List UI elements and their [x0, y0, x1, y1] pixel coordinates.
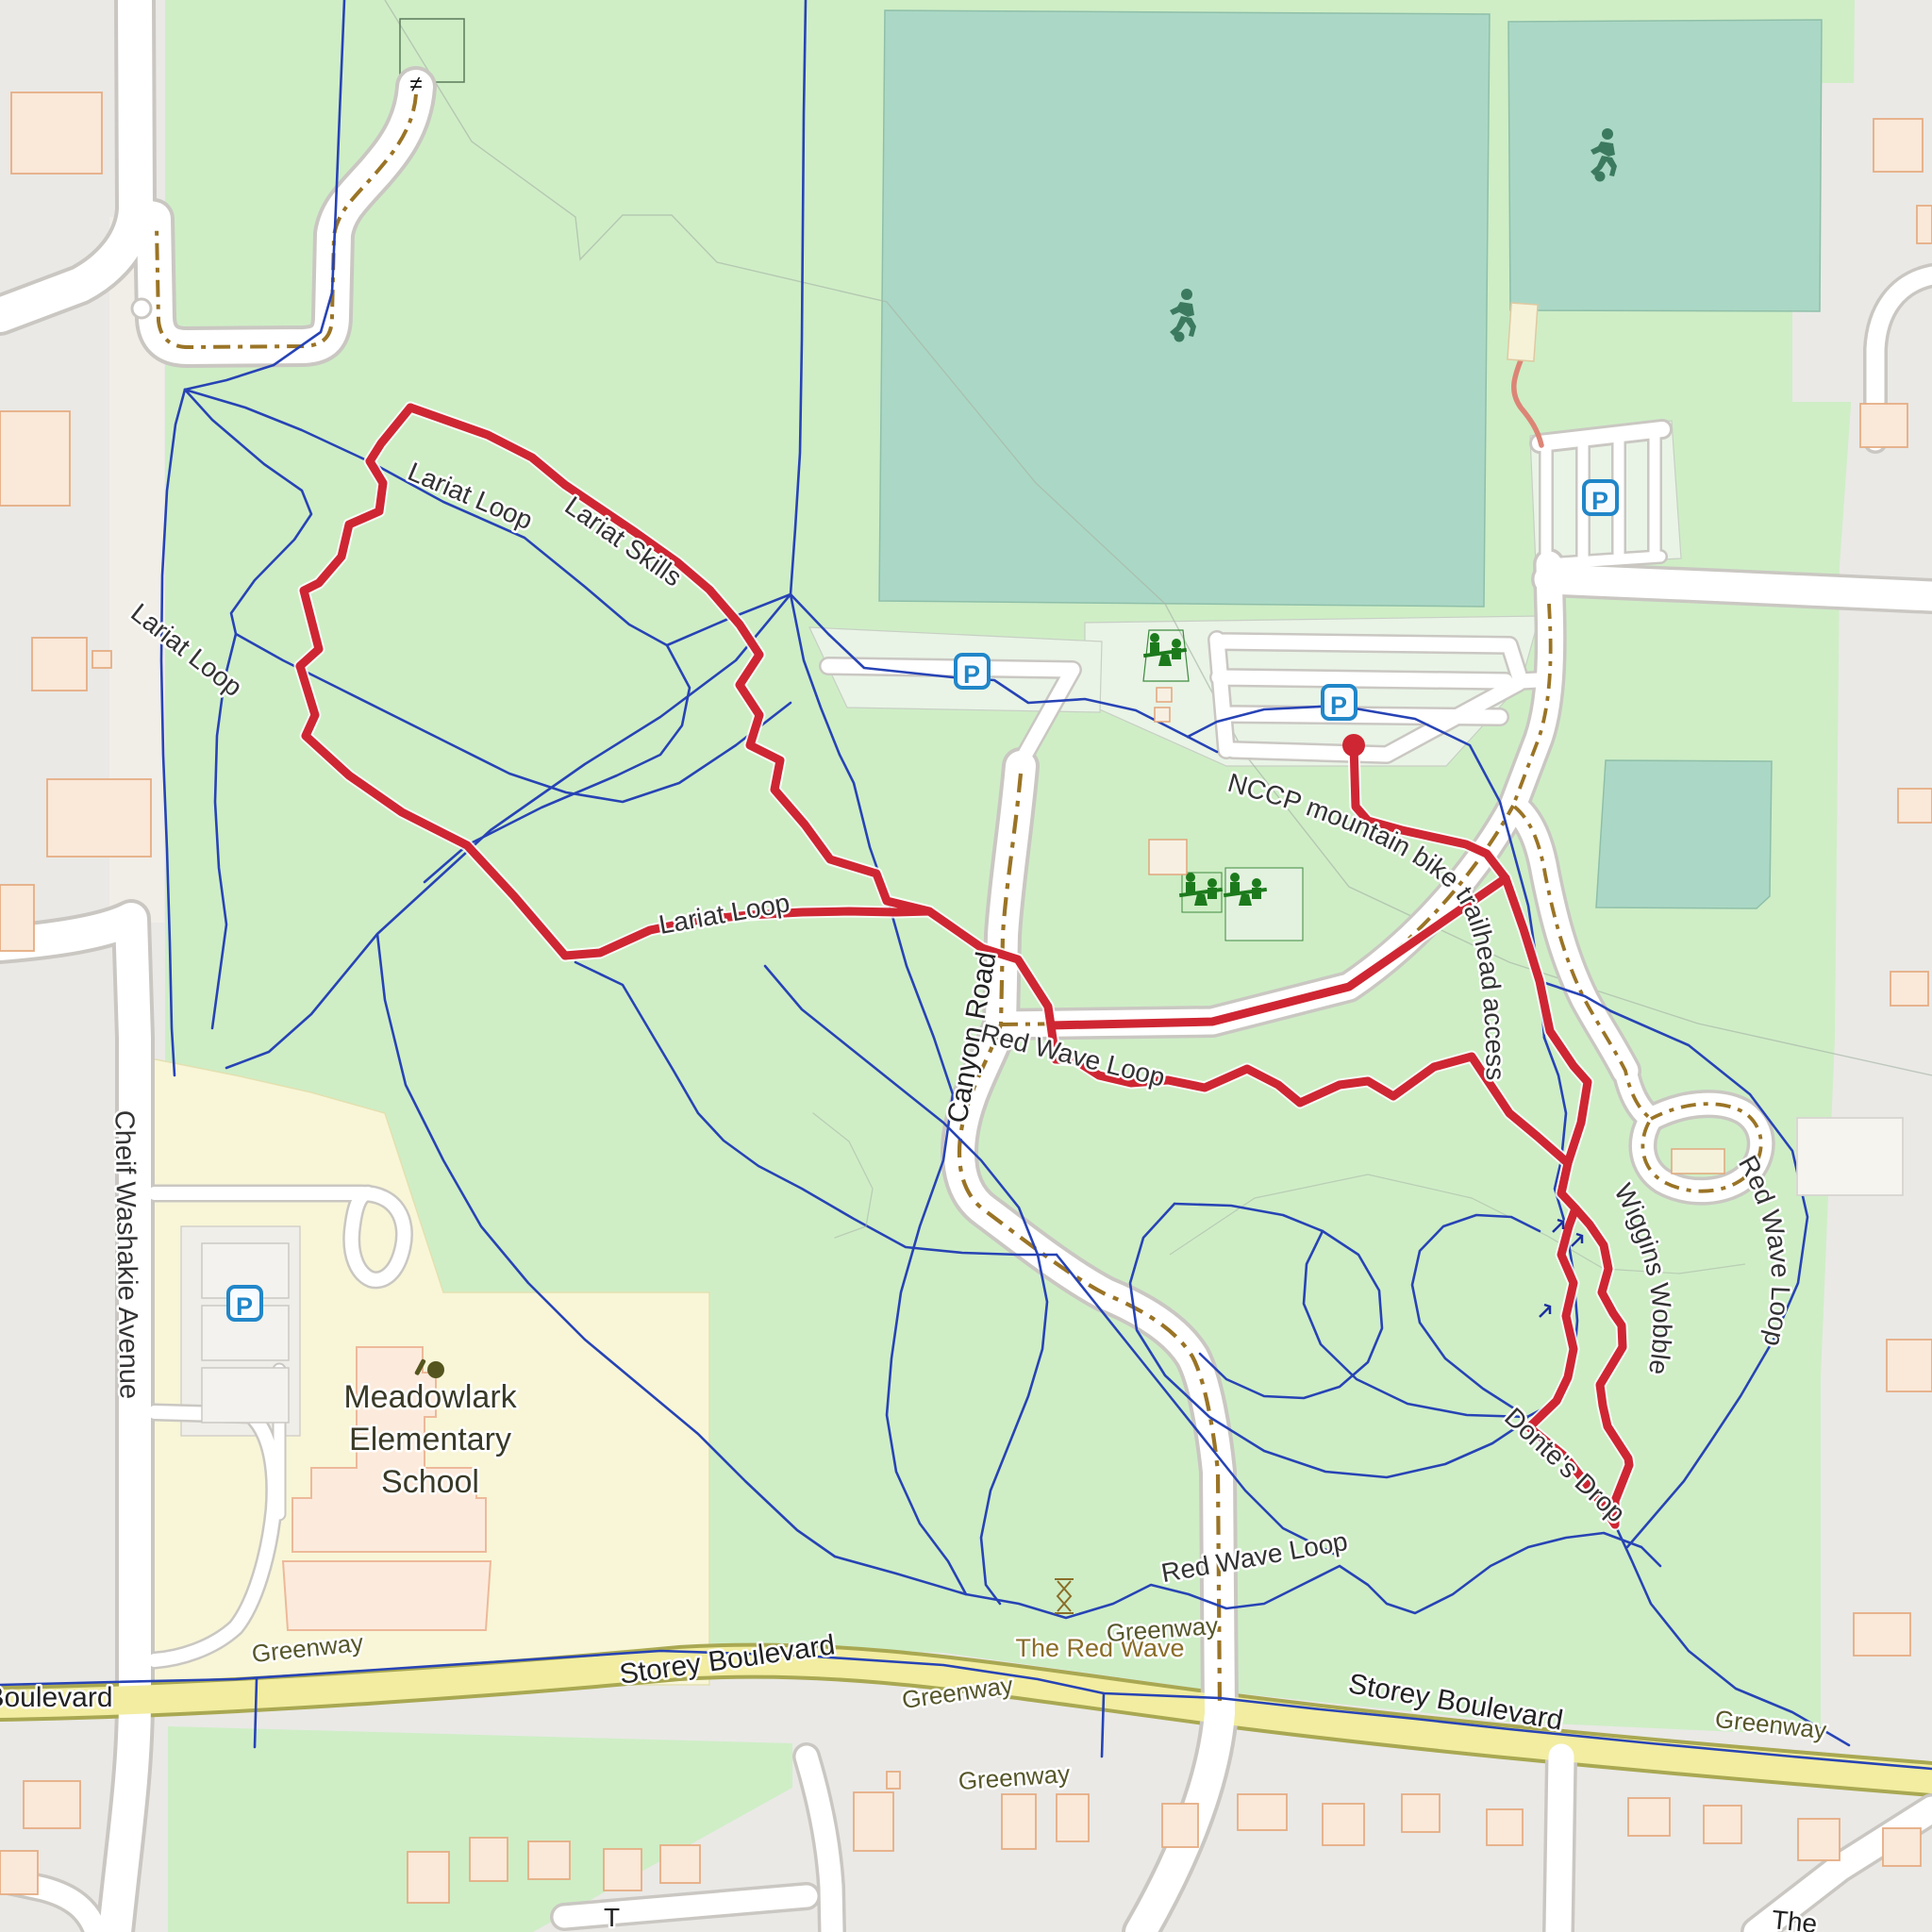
svg-text:The: The	[1771, 1905, 1819, 1932]
svg-text:School: School	[381, 1464, 479, 1500]
svg-text:Elementary: Elementary	[349, 1422, 511, 1457]
svg-text:Meadowlark: Meadowlark	[343, 1379, 517, 1415]
svg-text:P: P	[1591, 487, 1608, 515]
svg-text:P: P	[1330, 691, 1347, 720]
svg-text:P: P	[236, 1292, 253, 1321]
svg-text:Cheif Washakie Avenue: Cheif Washakie Avenue	[108, 1110, 143, 1400]
svg-text:≠: ≠	[409, 72, 422, 97]
svg-text:Boulevard: Boulevard	[0, 1682, 113, 1713]
svg-text:T: T	[604, 1903, 620, 1932]
svg-text:P: P	[963, 660, 980, 689]
